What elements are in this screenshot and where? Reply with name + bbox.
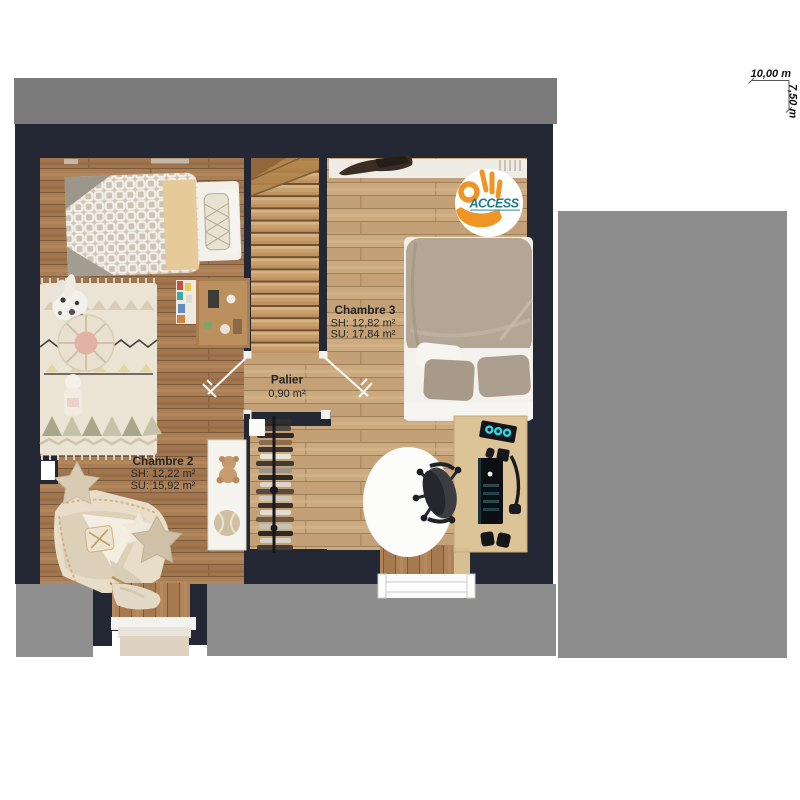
svg-text:10,00 m: 10,00 m: [751, 68, 792, 80]
svg-text:7,50 m: 7,50 m: [787, 84, 799, 118]
svg-text:Chambre 3: Chambre 3: [335, 303, 396, 317]
svg-text:Palier: Palier: [271, 373, 304, 387]
svg-text:0,90 m²: 0,90 m²: [268, 388, 306, 400]
svg-text:SU: 15,92 m²: SU: 15,92 m²: [131, 480, 196, 492]
svg-text:SU: 17,84 m²: SU: 17,84 m²: [331, 329, 396, 341]
svg-text:SH: 12,22 m²: SH: 12,22 m²: [131, 468, 196, 480]
svg-text:ACCESS: ACCESS: [468, 197, 519, 211]
svg-text:Chambre 2: Chambre 2: [133, 454, 194, 468]
